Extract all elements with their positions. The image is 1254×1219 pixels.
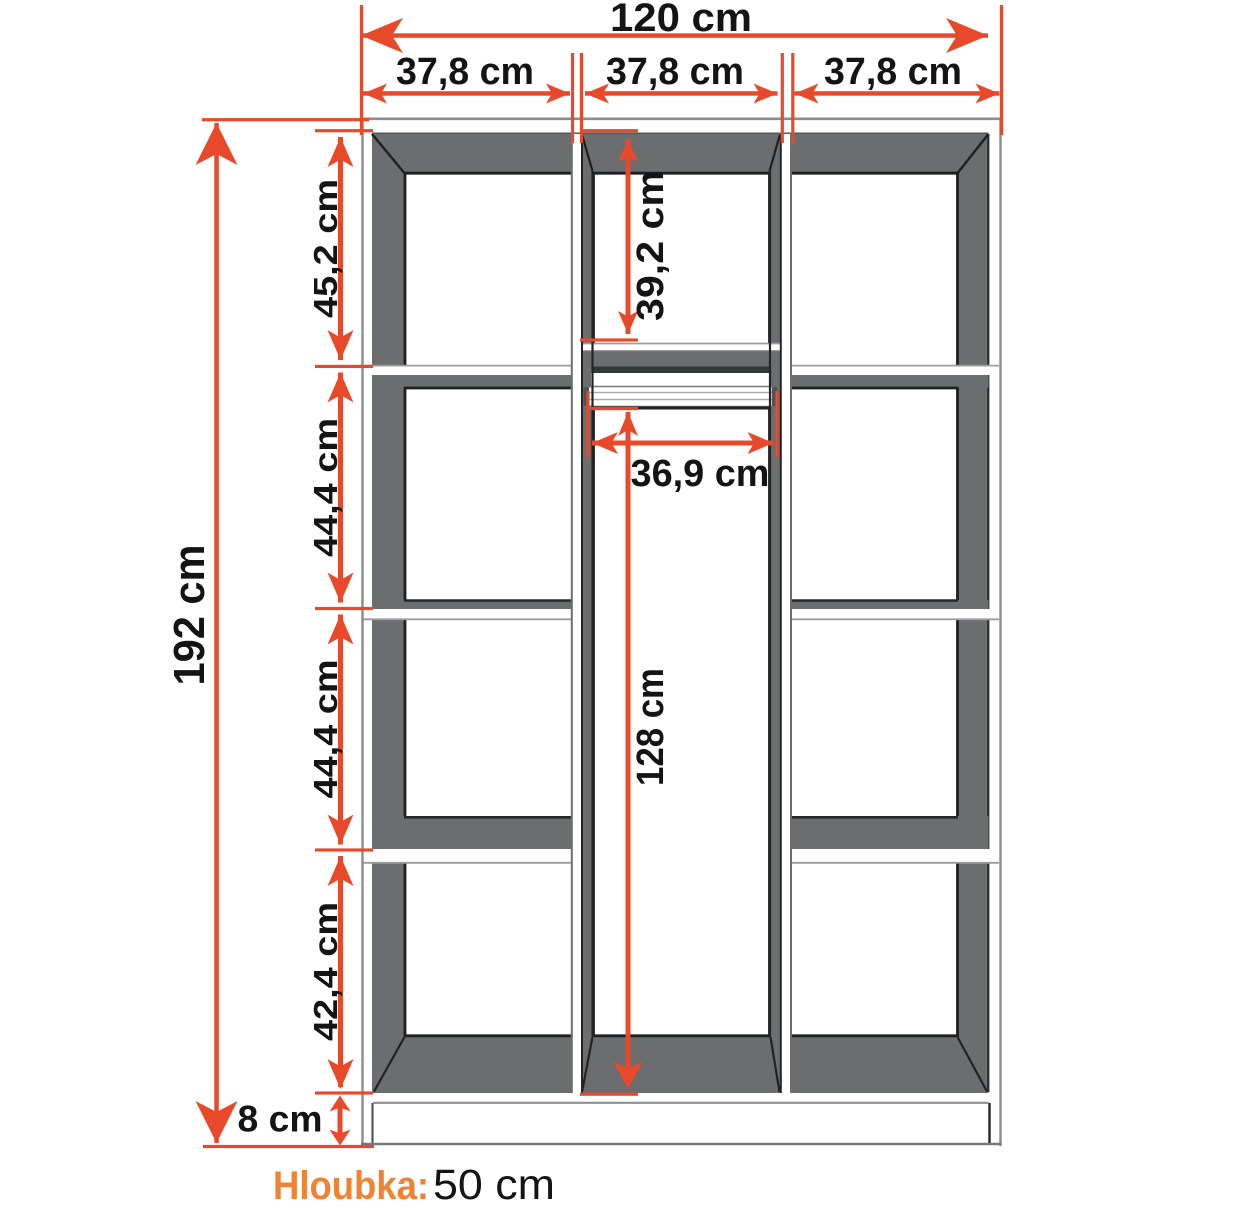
svg-text:8 cm: 8 cm <box>238 1099 323 1140</box>
svg-text:42,4 cm: 42,4 cm <box>307 902 344 1041</box>
svg-text:Hloubka:50 cm: Hloubka:50 cm <box>273 1161 555 1209</box>
svg-text:37,8 cm: 37,8 cm <box>824 51 962 93</box>
svg-text:192 cm: 192 cm <box>165 545 214 686</box>
svg-text:36,9 cm: 36,9 cm <box>631 453 770 495</box>
svg-text:120 cm: 120 cm <box>610 0 752 40</box>
svg-text:44,4 cm: 44,4 cm <box>307 418 344 557</box>
svg-text:45,2 cm: 45,2 cm <box>307 179 344 318</box>
svg-text:44,4 cm: 44,4 cm <box>307 660 344 799</box>
svg-text:128 cm: 128 cm <box>630 668 672 786</box>
svg-text:37,8 cm: 37,8 cm <box>606 51 744 93</box>
svg-text:39,2 cm: 39,2 cm <box>630 170 672 321</box>
svg-text:37,8 cm: 37,8 cm <box>396 51 534 93</box>
